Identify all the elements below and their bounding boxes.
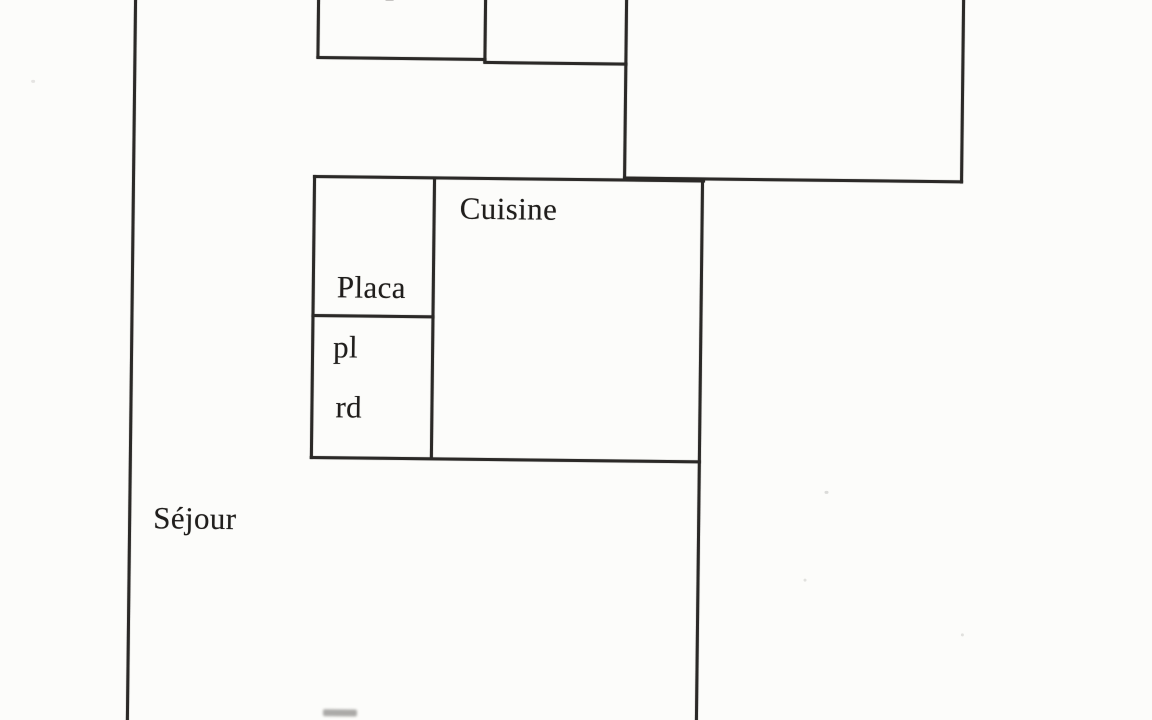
scan-artifact-speck-2 [804, 579, 807, 582]
scan-artifact-speck-4 [31, 80, 35, 83]
room-label-placard-line1: Placa [337, 267, 407, 308]
scan-rotation-layer: Placa rd Cuisine pl Séjour [0, 0, 1152, 720]
wall-top-room-a-bottom [316, 56, 486, 61]
wall-top-room-b-bottom [483, 61, 627, 66]
room-label-sejour: Séjour [153, 498, 237, 539]
wall-top-room-divider [483, 0, 487, 63]
scan-artifact-top-mark-2 [385, 0, 394, 1]
wall-left-exterior [126, 0, 137, 720]
scan-artifact-speck-1 [824, 491, 828, 494]
room-label-placard-line2: rd [335, 387, 405, 428]
room-label-pl: pl [333, 327, 358, 367]
wall-big-room-right [960, 0, 965, 183]
scan-artifact-speck-3 [961, 633, 964, 636]
room-label-cuisine: Cuisine [459, 189, 557, 230]
wall-top-room-a-left [316, 0, 320, 58]
wall-top-room-b-right [623, 0, 628, 181]
scan-artifact-bottom-smudge [323, 709, 357, 716]
wall-kitchen-right-to-bottom [695, 179, 704, 720]
floor-plan: Placa rd Cuisine pl Séjour [0, 0, 1152, 720]
